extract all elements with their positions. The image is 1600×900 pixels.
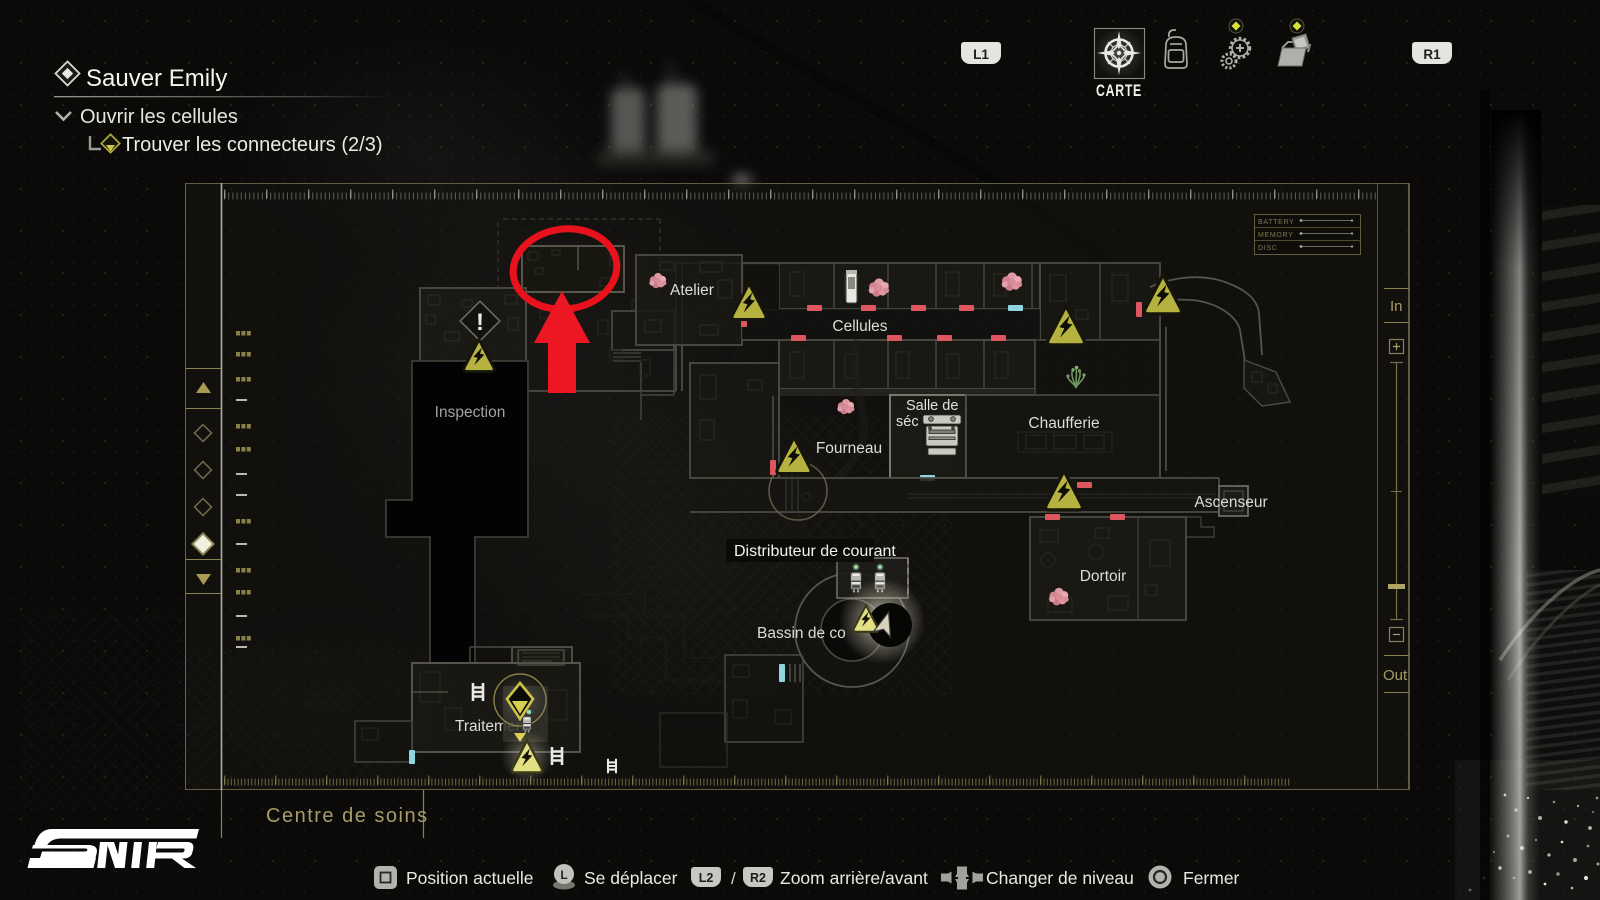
- svg-text:!: !: [476, 309, 484, 336]
- svg-text:Atelier: Atelier: [670, 282, 714, 299]
- svg-text:MEMORY: MEMORY: [1258, 232, 1294, 239]
- svg-text:L1: L1: [973, 47, 989, 62]
- svg-text:Chaufferie: Chaufferie: [1028, 415, 1099, 432]
- svg-text:Out: Out: [1383, 667, 1408, 684]
- svg-text:L: L: [560, 868, 567, 882]
- svg-text:Ascenseur: Ascenseur: [1194, 494, 1267, 511]
- svg-text:Cellules: Cellules: [832, 318, 887, 335]
- svg-text:Salle de: Salle de: [906, 398, 958, 414]
- svg-text:Sauver Emily: Sauver Emily: [86, 65, 227, 92]
- svg-text:séc: séc: [896, 414, 919, 430]
- svg-text:CARTE: CARTE: [1096, 82, 1142, 100]
- svg-text:Position actuelle: Position actuelle: [406, 868, 533, 888]
- svg-text:In: In: [1390, 298, 1403, 315]
- svg-text:Distributeur de courant: Distributeur de courant: [734, 543, 896, 560]
- svg-text:Fermer: Fermer: [1183, 868, 1240, 888]
- svg-text:R2: R2: [750, 871, 766, 885]
- svg-text:L2: L2: [699, 871, 714, 885]
- svg-text:DISC: DISC: [1258, 245, 1278, 252]
- svg-text:R1: R1: [1423, 47, 1441, 62]
- svg-text:Se déplacer: Se déplacer: [584, 868, 678, 888]
- svg-text:BATTERY: BATTERY: [1258, 219, 1295, 226]
- svg-text:/: /: [731, 869, 736, 888]
- svg-text:Changer de niveau: Changer de niveau: [986, 868, 1134, 888]
- svg-text:Bassin de co: Bassin de co: [757, 625, 846, 642]
- svg-text:Dortoir: Dortoir: [1080, 568, 1127, 585]
- svg-text:Zoom arrière/avant: Zoom arrière/avant: [780, 868, 928, 888]
- svg-text:Ouvrir les cellules: Ouvrir les cellules: [80, 106, 238, 128]
- svg-text:Fourneau: Fourneau: [816, 440, 882, 457]
- svg-text:Trouver les connecteurs (2/3): Trouver les connecteurs (2/3): [122, 134, 382, 156]
- svg-text:Inspection: Inspection: [435, 404, 506, 421]
- svg-text:Centre de soins: Centre de soins: [266, 805, 429, 827]
